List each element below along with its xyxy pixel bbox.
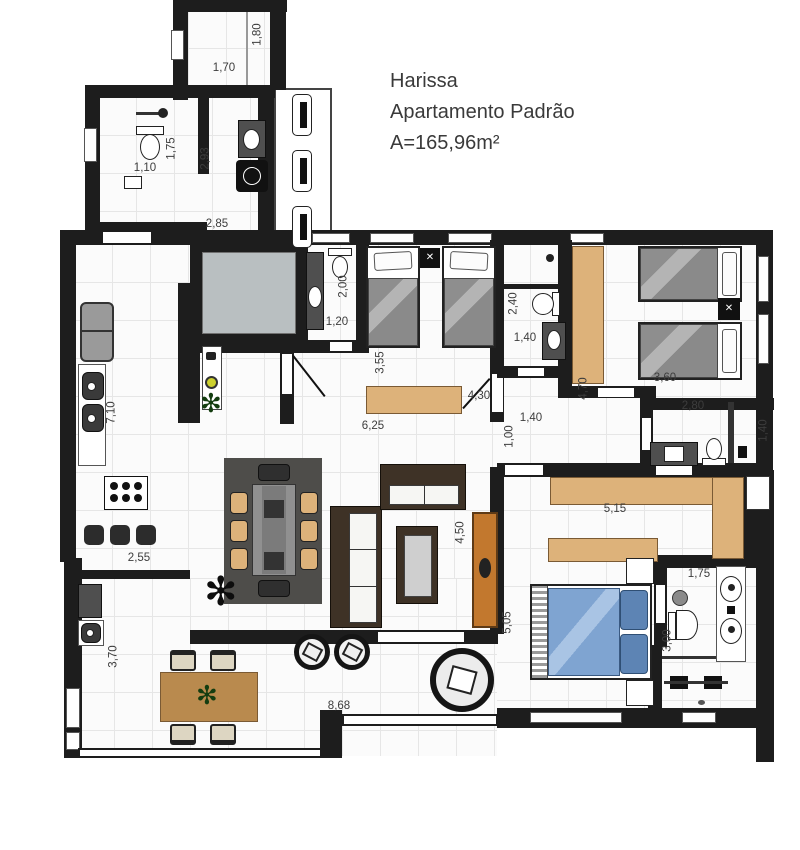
bath3-sink bbox=[664, 446, 684, 462]
dim-label: 8,68 bbox=[322, 700, 356, 713]
faucet bbox=[86, 629, 94, 637]
dim-label: 4,50 bbox=[455, 516, 468, 550]
decor-dot bbox=[206, 352, 216, 360]
round-armchair bbox=[334, 634, 370, 670]
door-opening bbox=[598, 388, 634, 397]
dim-label: 4,30 bbox=[462, 390, 496, 403]
window bbox=[682, 712, 716, 723]
dim-label: 4,70 bbox=[578, 372, 591, 406]
wall-bedroom2-left bbox=[558, 240, 572, 390]
cushion-seam bbox=[349, 549, 377, 550]
toilet-bowl bbox=[676, 610, 698, 640]
dim-label: 3,55 bbox=[375, 346, 388, 380]
dining-chair bbox=[230, 520, 248, 542]
nightstand bbox=[626, 680, 654, 706]
dim-label: 2,80 bbox=[676, 400, 710, 413]
dim-label: 2,55 bbox=[122, 552, 156, 565]
placemat bbox=[264, 500, 284, 518]
bath1-sink bbox=[308, 286, 322, 308]
balcony-railing bbox=[78, 748, 322, 758]
bar-stool bbox=[136, 525, 156, 545]
window bbox=[312, 233, 350, 243]
dining-chair bbox=[230, 548, 248, 570]
dim-label: 2,00 bbox=[338, 270, 351, 304]
round-armchair bbox=[294, 634, 330, 670]
egg-chair-cushion bbox=[446, 665, 477, 695]
dim-label: 5,15 bbox=[598, 503, 632, 516]
dresser bbox=[366, 386, 462, 414]
blanket bbox=[640, 324, 718, 378]
bar-stool bbox=[110, 525, 130, 545]
balcony-chair bbox=[170, 650, 196, 671]
dim-label: 2,40 bbox=[508, 287, 521, 321]
faucet bbox=[728, 626, 735, 633]
plant-icon bbox=[196, 682, 218, 708]
head-chair bbox=[258, 580, 290, 597]
window bbox=[370, 233, 414, 243]
window bbox=[758, 256, 769, 302]
dim-label: 1,70 bbox=[207, 62, 241, 75]
balcony-railing bbox=[342, 714, 498, 726]
window bbox=[570, 233, 604, 243]
placemat bbox=[264, 552, 284, 570]
dim-label: 1,00 bbox=[504, 420, 517, 454]
bed-pillow bbox=[620, 634, 648, 674]
cushion-seam bbox=[424, 485, 425, 505]
bed-duvet bbox=[548, 588, 620, 676]
shower-bar bbox=[664, 681, 728, 684]
blanket bbox=[444, 278, 494, 346]
single-bed bbox=[442, 246, 496, 348]
cushion-seam bbox=[349, 586, 377, 587]
shower-head-icon bbox=[546, 254, 554, 262]
armchair bbox=[396, 526, 438, 604]
dim-label: 2,85 bbox=[200, 218, 234, 231]
door-opening bbox=[330, 342, 352, 351]
wall-kitchen bbox=[178, 283, 200, 423]
dim-label: 2,93 bbox=[200, 142, 213, 176]
nightstand bbox=[420, 248, 440, 268]
stove bbox=[104, 476, 148, 510]
toilet-tank bbox=[328, 248, 352, 256]
plan-area: A=165,96m² bbox=[390, 128, 575, 159]
sliding-door-opening bbox=[378, 632, 464, 642]
dim-label: 1,40 bbox=[758, 414, 771, 448]
door-opening bbox=[656, 585, 665, 623]
toilet-bowl bbox=[532, 293, 554, 315]
window bbox=[171, 30, 184, 60]
laundry-sink bbox=[243, 129, 260, 150]
dining-chair bbox=[230, 492, 248, 514]
dining-chair bbox=[300, 548, 318, 570]
pillow bbox=[722, 329, 737, 373]
fridge-divider bbox=[82, 330, 112, 332]
dim-label: 3,60 bbox=[648, 372, 682, 385]
door-opening bbox=[518, 368, 544, 376]
washer-door bbox=[243, 167, 261, 185]
wall-shower-divider bbox=[728, 402, 734, 466]
nightstand bbox=[718, 298, 740, 320]
plan-type: Apartamento Padrão bbox=[390, 97, 575, 128]
plan-name: Harissa bbox=[390, 66, 575, 97]
sofa bbox=[380, 464, 466, 510]
faucet bbox=[87, 382, 96, 391]
dim-label: 3,00 bbox=[662, 624, 675, 658]
floor-plan: 1,70 1,80 1,75 1,10 2,93 2,85 2,00 1,20 … bbox=[0, 0, 800, 850]
small-sink bbox=[124, 176, 142, 189]
wall-post bbox=[320, 710, 342, 758]
side-table bbox=[672, 590, 688, 606]
pouf-cushion bbox=[302, 642, 324, 662]
blanket bbox=[640, 248, 718, 300]
shaft-room bbox=[202, 252, 296, 334]
wardrobe bbox=[572, 246, 604, 384]
window bbox=[84, 128, 97, 162]
sideboard-handle bbox=[479, 558, 491, 578]
dim-label: 7,10 bbox=[106, 396, 119, 430]
sofa bbox=[330, 506, 382, 628]
dining-chair bbox=[300, 492, 318, 514]
window bbox=[530, 712, 622, 723]
shower-fixture bbox=[738, 446, 747, 458]
grill-counter bbox=[78, 584, 102, 618]
pillow bbox=[722, 252, 737, 296]
dim-label: 1,20 bbox=[320, 316, 354, 329]
ac-coil bbox=[300, 102, 307, 128]
bath2-sink bbox=[547, 330, 561, 350]
plan-title-block: Harissa Apartamento Padrão A=165,96m² bbox=[390, 66, 575, 159]
single-bed bbox=[638, 246, 742, 302]
balcony-chair bbox=[210, 724, 236, 745]
wall bbox=[270, 0, 286, 90]
head-chair bbox=[258, 464, 290, 481]
bed-footboard bbox=[532, 586, 548, 678]
wall bbox=[85, 85, 275, 98]
nightstand bbox=[626, 558, 654, 584]
fridge bbox=[80, 302, 114, 362]
dim-label: 1,80 bbox=[252, 18, 265, 52]
pouf-cushion bbox=[342, 642, 364, 662]
faucet bbox=[87, 414, 96, 423]
single-bed bbox=[366, 246, 420, 348]
faucet bbox=[728, 584, 735, 591]
balcony-chair bbox=[170, 724, 196, 745]
toilet-bowl bbox=[706, 438, 722, 460]
dim-label: 5,05 bbox=[502, 606, 515, 640]
door-opening bbox=[282, 354, 292, 394]
window bbox=[66, 688, 80, 728]
stove-burners bbox=[110, 482, 118, 490]
dim-label: 1,75 bbox=[166, 132, 179, 166]
plant-icon bbox=[204, 572, 238, 612]
dim-label: 6,25 bbox=[356, 420, 390, 433]
double-bed bbox=[530, 584, 652, 680]
door-opening bbox=[505, 465, 543, 475]
dim-label: 1,10 bbox=[128, 162, 162, 175]
wall-left bbox=[60, 230, 76, 562]
balcony-chair bbox=[210, 650, 236, 671]
pillow bbox=[450, 251, 489, 271]
wall-top bbox=[60, 230, 773, 245]
wardrobe bbox=[712, 477, 744, 559]
plant-icon bbox=[200, 390, 222, 416]
bed-pillow bbox=[620, 590, 648, 630]
dim-label: 3,70 bbox=[108, 640, 121, 674]
dim-label: 1,75 bbox=[682, 568, 716, 581]
dim-label: 1,40 bbox=[508, 332, 542, 345]
dining-chair bbox=[300, 520, 318, 542]
sofa-cushions bbox=[349, 513, 377, 623]
door-opening bbox=[656, 466, 692, 475]
blanket bbox=[368, 278, 418, 346]
ac-coil bbox=[300, 214, 307, 240]
egg-chair bbox=[430, 648, 494, 712]
niche bbox=[746, 476, 770, 510]
toilet-bowl bbox=[140, 134, 160, 160]
window bbox=[758, 314, 769, 364]
bar-stool bbox=[84, 525, 104, 545]
drain bbox=[698, 700, 705, 705]
window bbox=[448, 233, 492, 243]
armchair-cushion bbox=[404, 535, 432, 597]
wall-divider bbox=[246, 12, 248, 90]
wall-kitchen-balcony bbox=[76, 570, 190, 579]
soap-dish bbox=[727, 606, 735, 614]
door-opening bbox=[103, 232, 151, 243]
shower-head-icon bbox=[158, 108, 168, 118]
ac-coil bbox=[300, 158, 307, 184]
pillow bbox=[374, 251, 413, 271]
dim-label: 1,40 bbox=[514, 412, 548, 425]
